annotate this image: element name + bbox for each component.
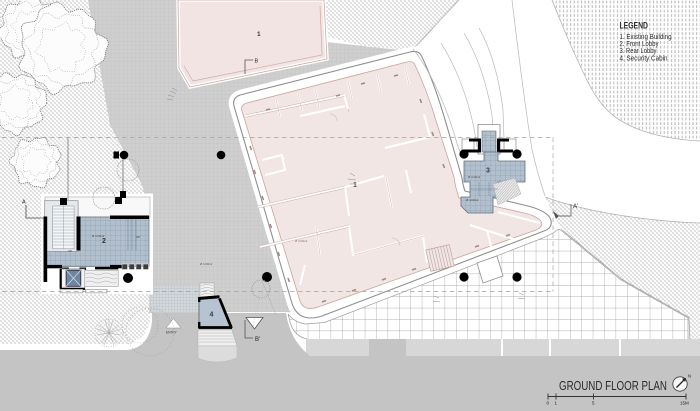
svg-text:ENTRY: ENTRY bbox=[166, 331, 178, 335]
svg-text:4: 4 bbox=[210, 312, 214, 319]
svg-text:B': B' bbox=[255, 337, 260, 343]
svg-text:Ø 4.00mtr: Ø 4.00mtr bbox=[295, 239, 308, 243]
svg-text:Ø 4.00mtr: Ø 4.00mtr bbox=[468, 175, 481, 179]
svg-text:Ø 4.00mtr: Ø 4.00mtr bbox=[92, 234, 105, 238]
svg-text:1: 1 bbox=[257, 31, 261, 38]
svg-text:3: 3 bbox=[486, 168, 490, 175]
svg-text:N: N bbox=[688, 374, 691, 379]
svg-text:15M: 15M bbox=[680, 401, 689, 406]
svg-text:GROUND FLOOR PLAN: GROUND FLOOR PLAN bbox=[559, 379, 667, 393]
svg-text:A: A bbox=[22, 200, 26, 206]
svg-text:4. Security Cabin: 4. Security Cabin bbox=[620, 53, 668, 62]
svg-text:B: B bbox=[255, 59, 259, 65]
svg-text:LEGEND: LEGEND bbox=[620, 21, 649, 31]
svg-text:2: 2 bbox=[102, 238, 106, 245]
svg-text:Ø 4.00mtr: Ø 4.00mtr bbox=[466, 198, 479, 202]
svg-text:UP: UP bbox=[68, 249, 72, 253]
svg-text:Ø 4.00mtr: Ø 4.00mtr bbox=[200, 262, 213, 266]
svg-text:UP: UP bbox=[136, 235, 140, 239]
svg-text:1: 1 bbox=[353, 182, 357, 189]
svg-text:A': A' bbox=[573, 204, 578, 210]
